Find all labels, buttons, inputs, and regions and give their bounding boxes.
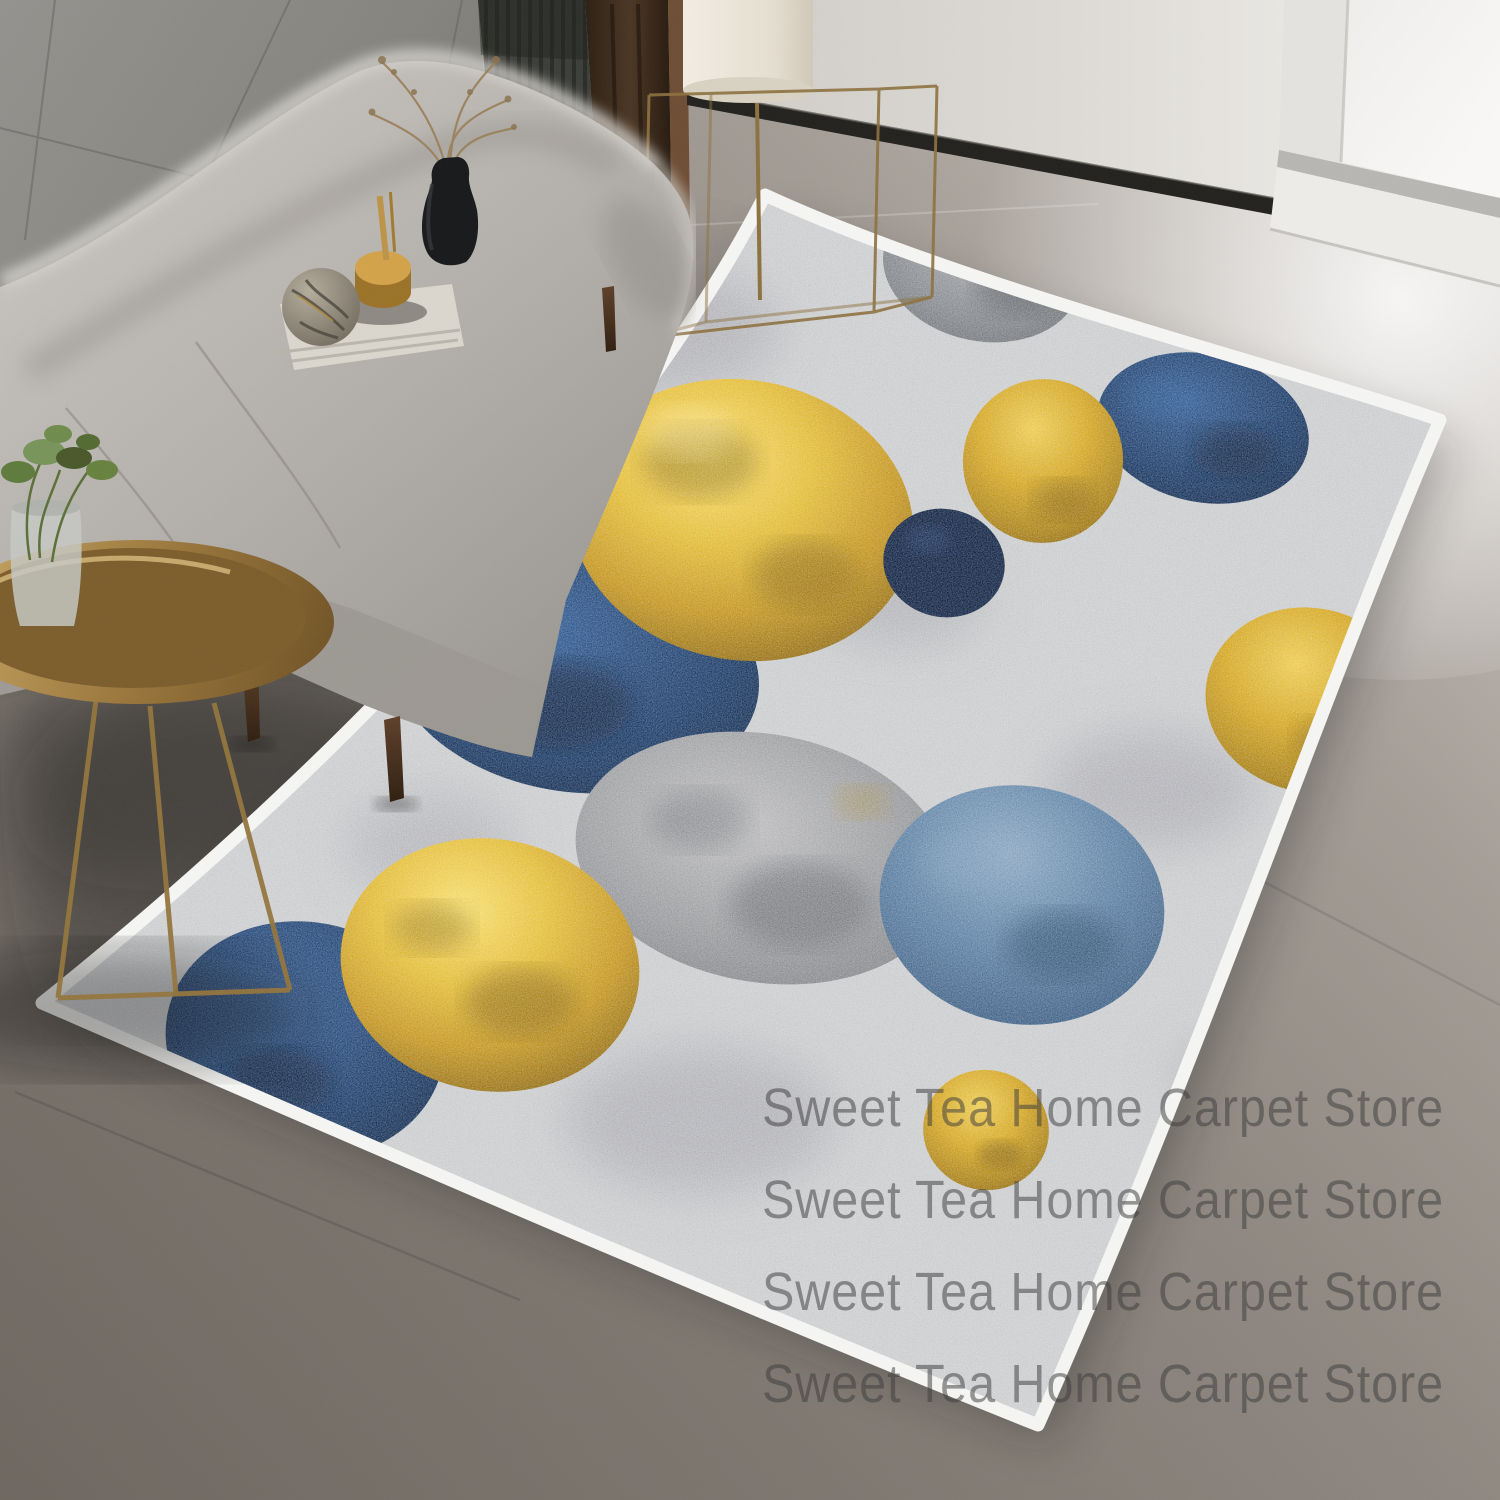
watermark-line-3: Sweet Tea Home Carpet Store — [762, 1262, 1444, 1322]
watermark-line-1: Sweet Tea Home Carpet Store — [762, 1078, 1444, 1138]
watermark-line-4: Sweet Tea Home Carpet Store — [762, 1354, 1444, 1414]
product-photo-stage: Sweet Tea Home Carpet Store Sweet Tea Ho… — [0, 0, 1500, 1500]
living-room-scene: Sweet Tea Home Carpet Store Sweet Tea Ho… — [0, 0, 1500, 1500]
watermark-line-2: Sweet Tea Home Carpet Store — [762, 1170, 1444, 1230]
